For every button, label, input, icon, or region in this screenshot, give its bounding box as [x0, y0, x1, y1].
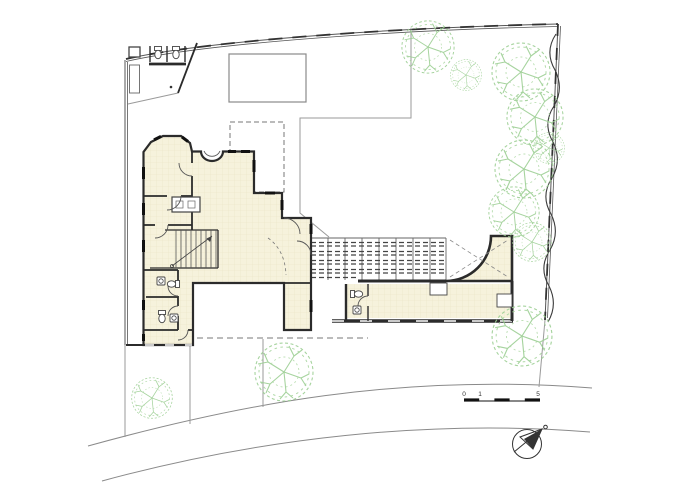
wing-floor [346, 284, 510, 318]
pool [229, 54, 306, 102]
boundary-top-survey-marks [126, 24, 558, 59]
survey-dot [170, 86, 173, 89]
outbuilding-store [130, 65, 140, 93]
forecourt-edge [128, 93, 178, 104]
toilet-icon [351, 291, 363, 298]
toilet-icon [155, 47, 162, 59]
hedge-wavy-line [544, 34, 560, 322]
fireplace-niche-inner-arc [204, 151, 220, 156]
tree-icon [513, 223, 552, 262]
toilet-icon [173, 47, 180, 59]
outbuilding-east-wall [178, 43, 197, 93]
scale-bar: 0 1 5 [462, 391, 540, 401]
wing-notch-east [497, 294, 512, 307]
wing-notch-north [430, 283, 447, 295]
site-plan-canvas: 0 1 5 [0, 0, 700, 500]
north-arrow-icon [513, 425, 548, 458]
boundary-top-outer [126, 24, 558, 59]
street-curves [88, 384, 592, 481]
outbuilding [129, 43, 197, 93]
scale-label-5: 5 [536, 391, 540, 398]
tree-icon [451, 60, 482, 91]
toilet-icon [159, 311, 166, 323]
sink-icon [353, 306, 361, 314]
pergola-slats [311, 243, 446, 278]
pergola [311, 238, 446, 280]
toilet-icon [167, 281, 179, 288]
curved-room [446, 236, 512, 281]
sink-icon [157, 277, 165, 285]
site-plan-page: 0 1 5 [0, 0, 700, 500]
kitchen-island [172, 197, 200, 212]
tree-icon [255, 343, 313, 401]
scale-label-0: 0 [462, 391, 466, 398]
terrace-boundary [300, 28, 411, 237]
scale-label-1: 1 [478, 391, 482, 398]
pergola-posts [311, 238, 446, 280]
boundary-top-inner [126, 27, 558, 62]
boundary-right-inner [548, 26, 561, 318]
lot-line-right-lower [539, 320, 545, 387]
garage-wing [332, 236, 513, 321]
tree-icon [132, 378, 173, 419]
outbuilding-closet [129, 47, 140, 57]
main-house [126, 136, 311, 345]
sink-icon [170, 314, 178, 322]
